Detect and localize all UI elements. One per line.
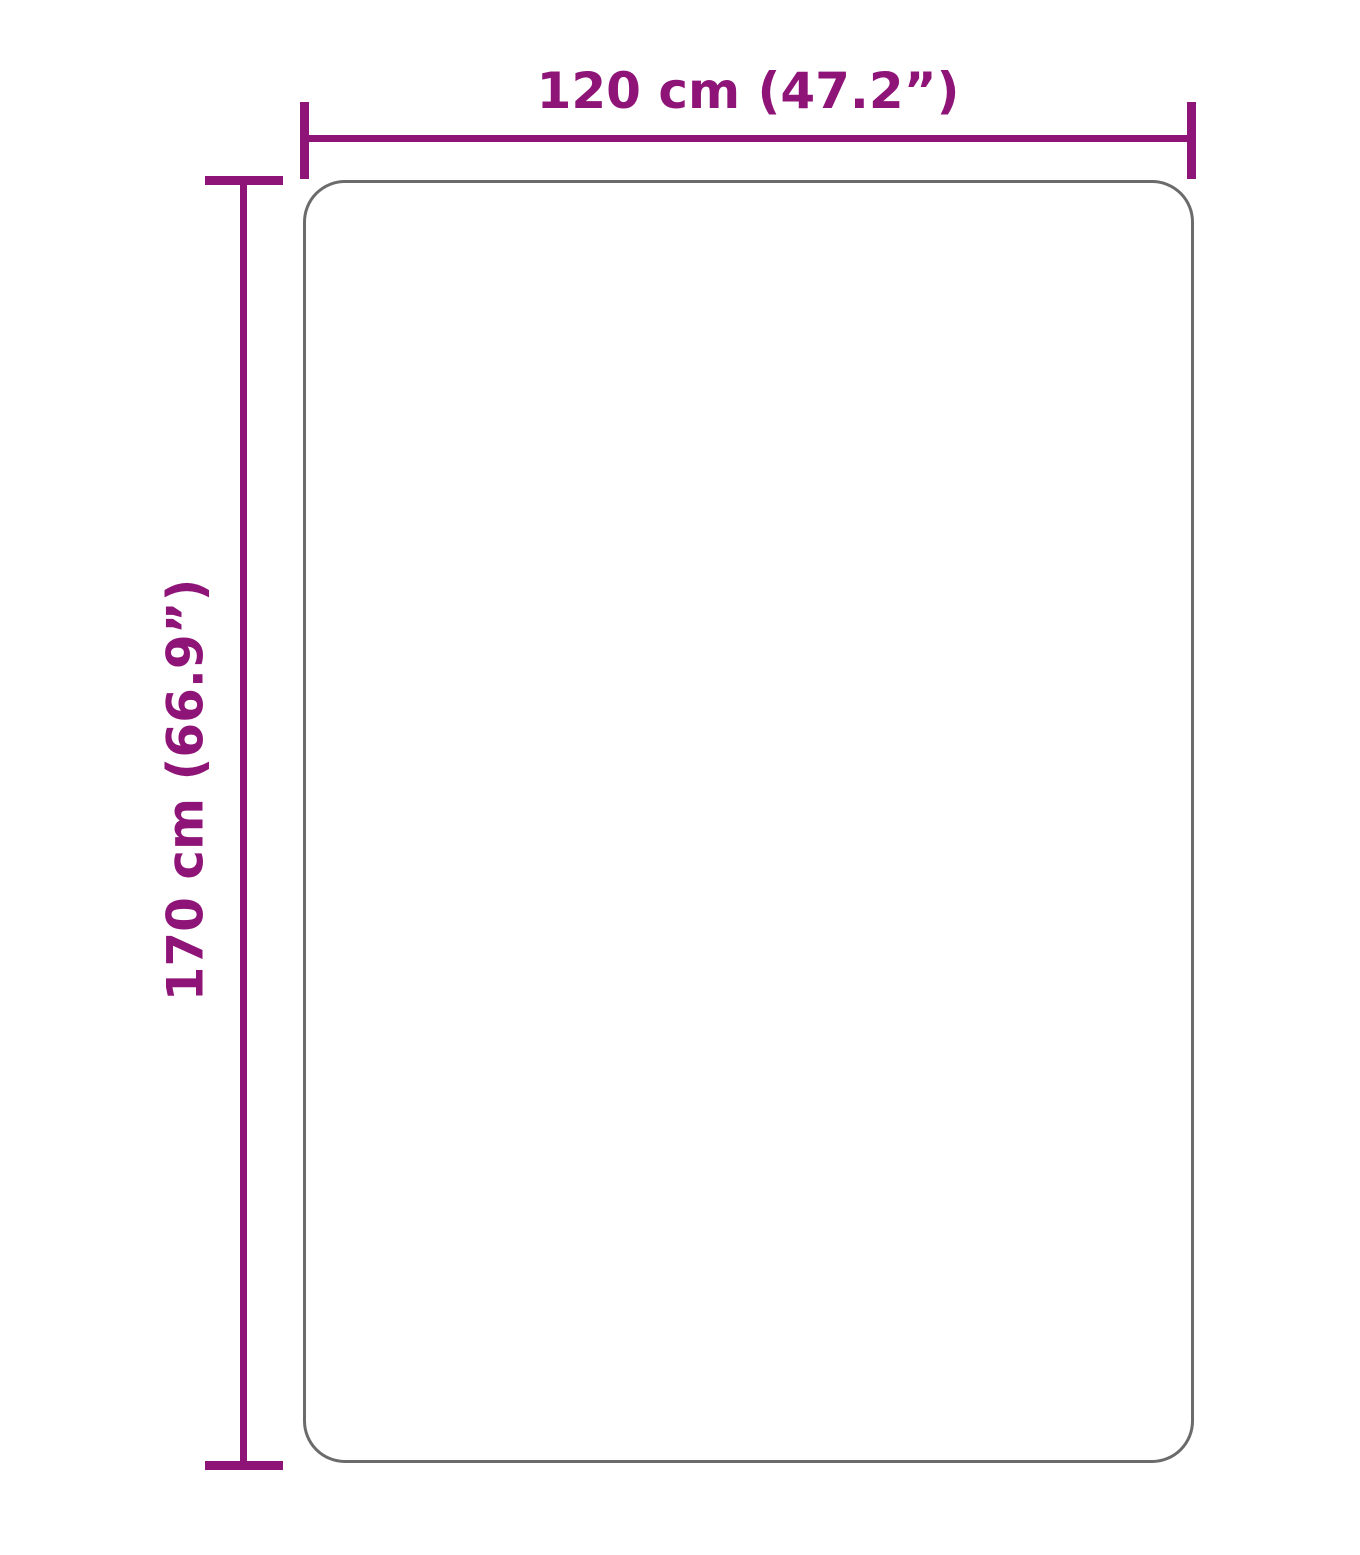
height-dimension-line (240, 177, 247, 1467)
width-dimension-label: 120 cm (47.2”) (300, 66, 1196, 116)
height-dimension-label-wrap: 170 cm (66.9”) (125, 160, 245, 1420)
product-outline (303, 180, 1194, 1463)
height-dimension-endcap-top (205, 176, 283, 185)
height-dimension-label: 170 cm (66.9”) (160, 579, 210, 1002)
width-dimension-line (300, 135, 1196, 142)
height-dimension-endcap-bottom (205, 1461, 283, 1470)
dimension-diagram: 120 cm (47.2”) 170 cm (66.9”) (0, 0, 1360, 1555)
